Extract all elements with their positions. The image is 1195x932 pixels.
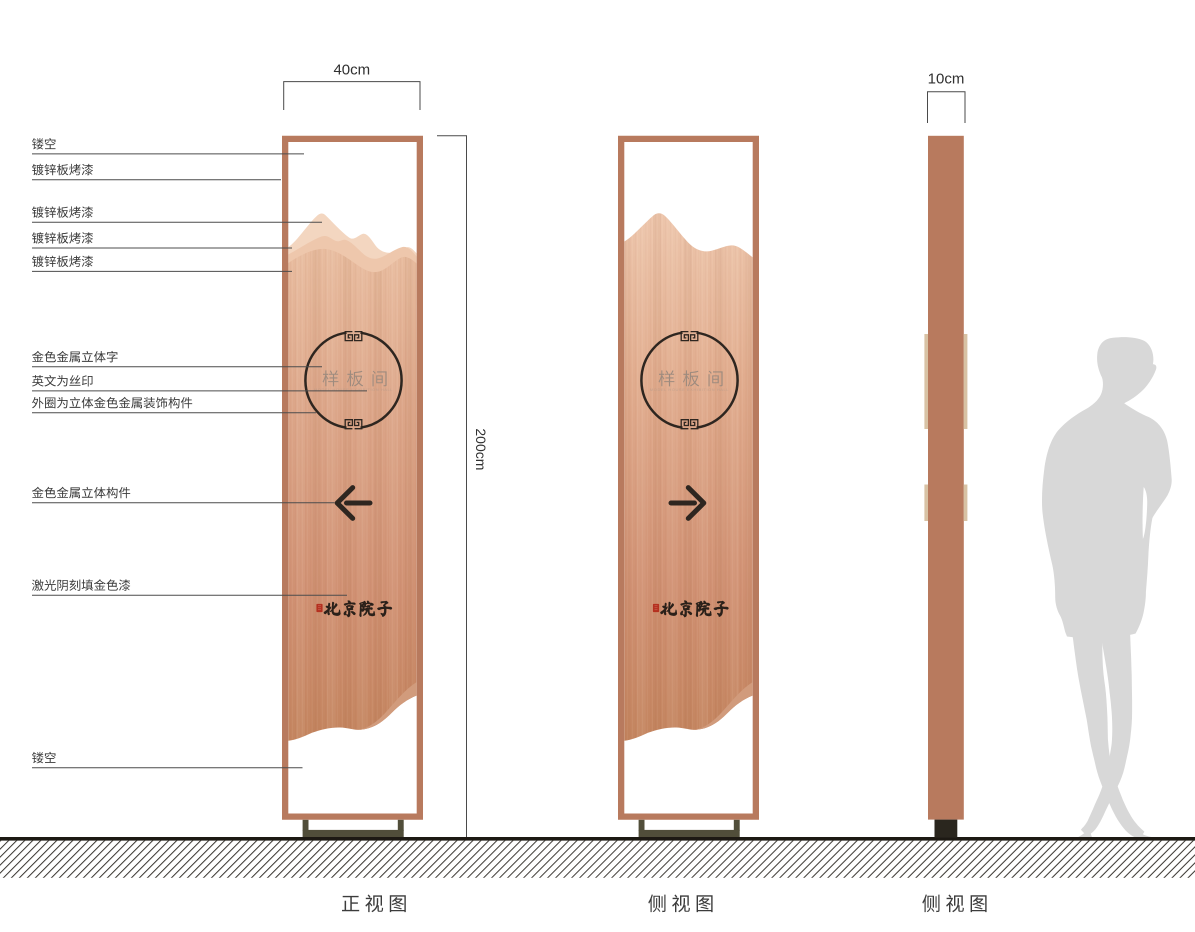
svg-text:MODEL HOUSE EXHIBITION HALL: MODEL HOUSE EXHIBITION HALL	[314, 387, 393, 392]
svg-text:10cm: 10cm	[928, 71, 965, 88]
svg-text:40cm: 40cm	[333, 62, 370, 79]
svg-text:MODEL HOUSE EXHIBITION HALL: MODEL HOUSE EXHIBITION HALL	[650, 387, 729, 392]
svg-text:200cm: 200cm	[473, 428, 489, 470]
